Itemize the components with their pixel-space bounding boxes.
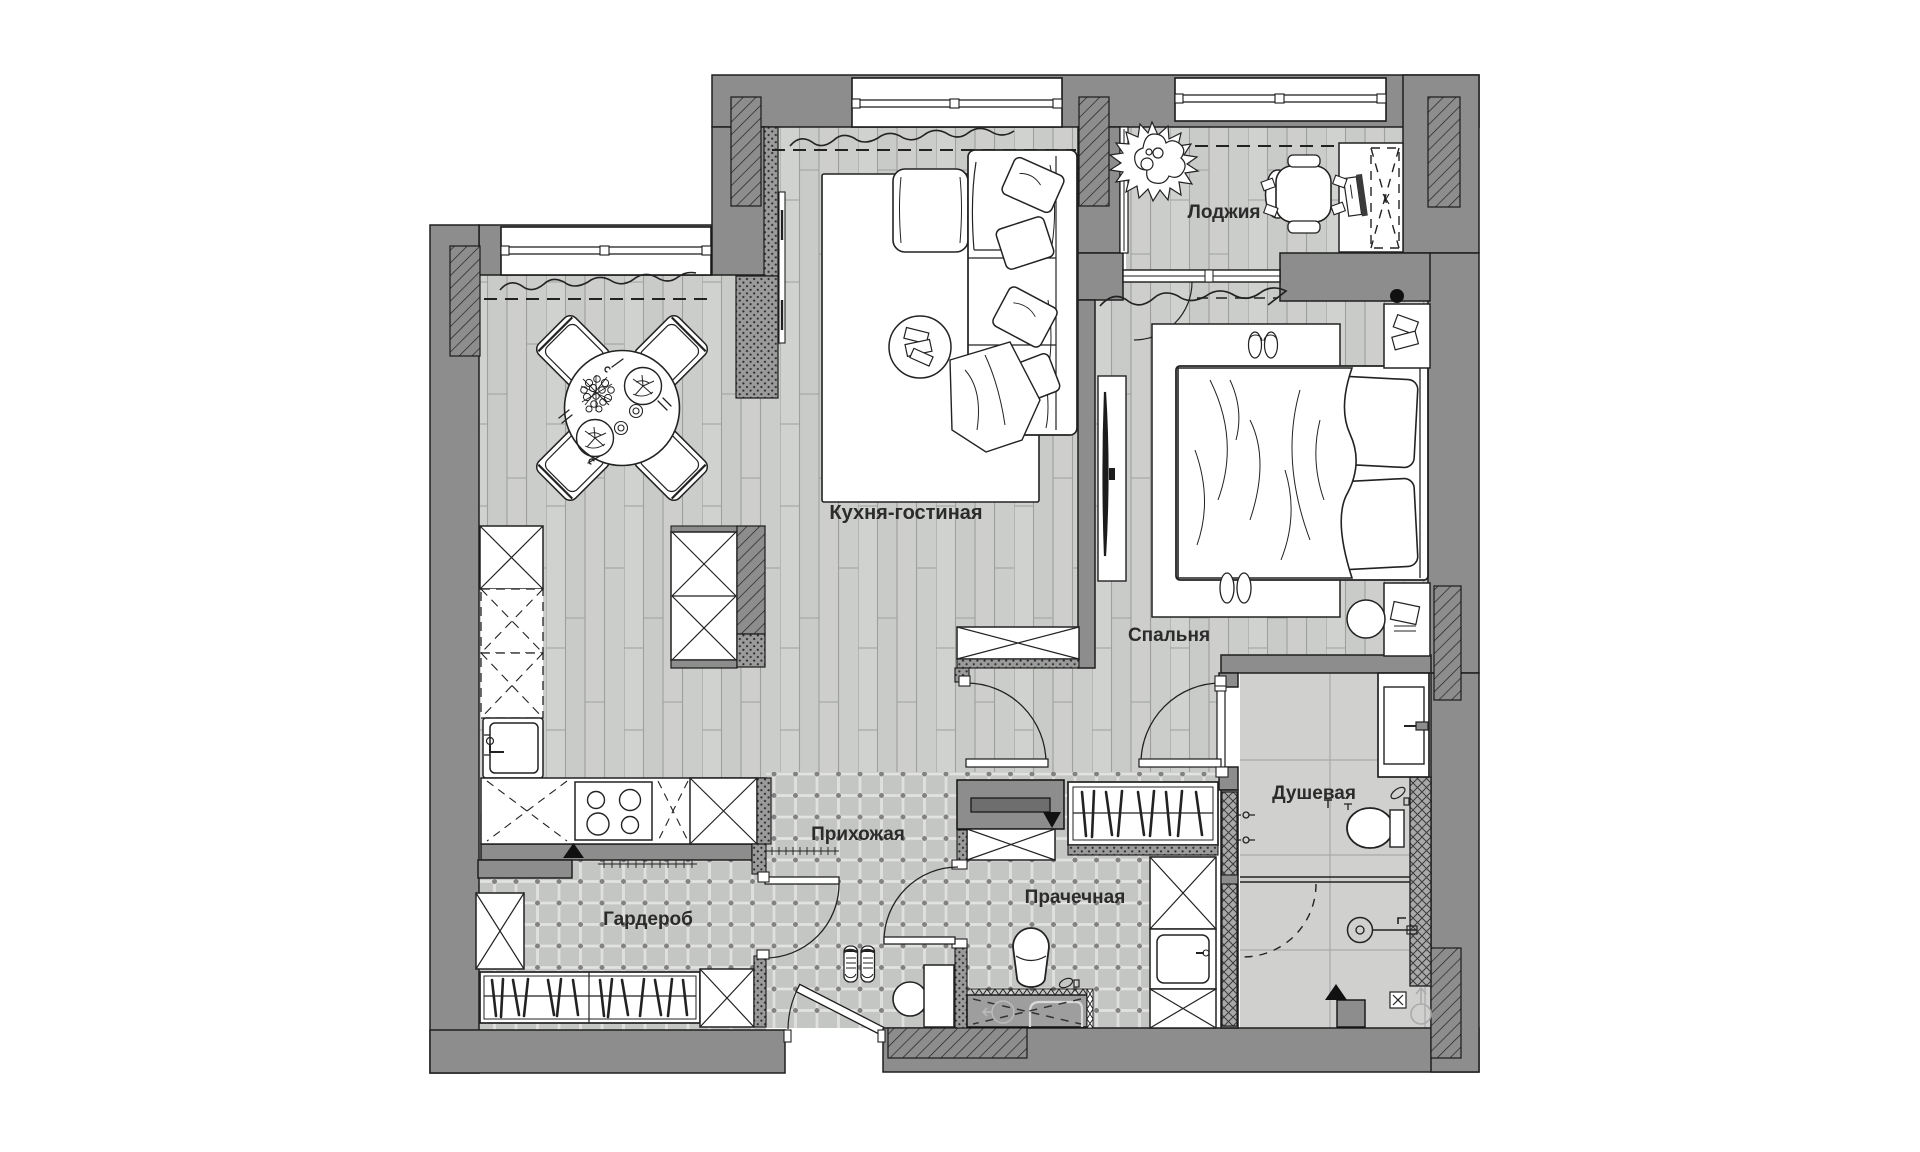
svg-text:Лоджия: Лоджия bbox=[1188, 202, 1261, 223]
svg-text:Кухня-гостиная: Кухня-гостиная bbox=[829, 502, 982, 524]
svg-text:Прихожая: Прихожая bbox=[811, 824, 905, 845]
svg-text:Душевая: Душевая bbox=[1272, 783, 1356, 804]
svg-text:Гардероб: Гардероб bbox=[603, 909, 693, 930]
svg-text:Спальня: Спальня bbox=[1128, 625, 1210, 646]
svg-text:Прачечная: Прачечная bbox=[1025, 887, 1126, 908]
